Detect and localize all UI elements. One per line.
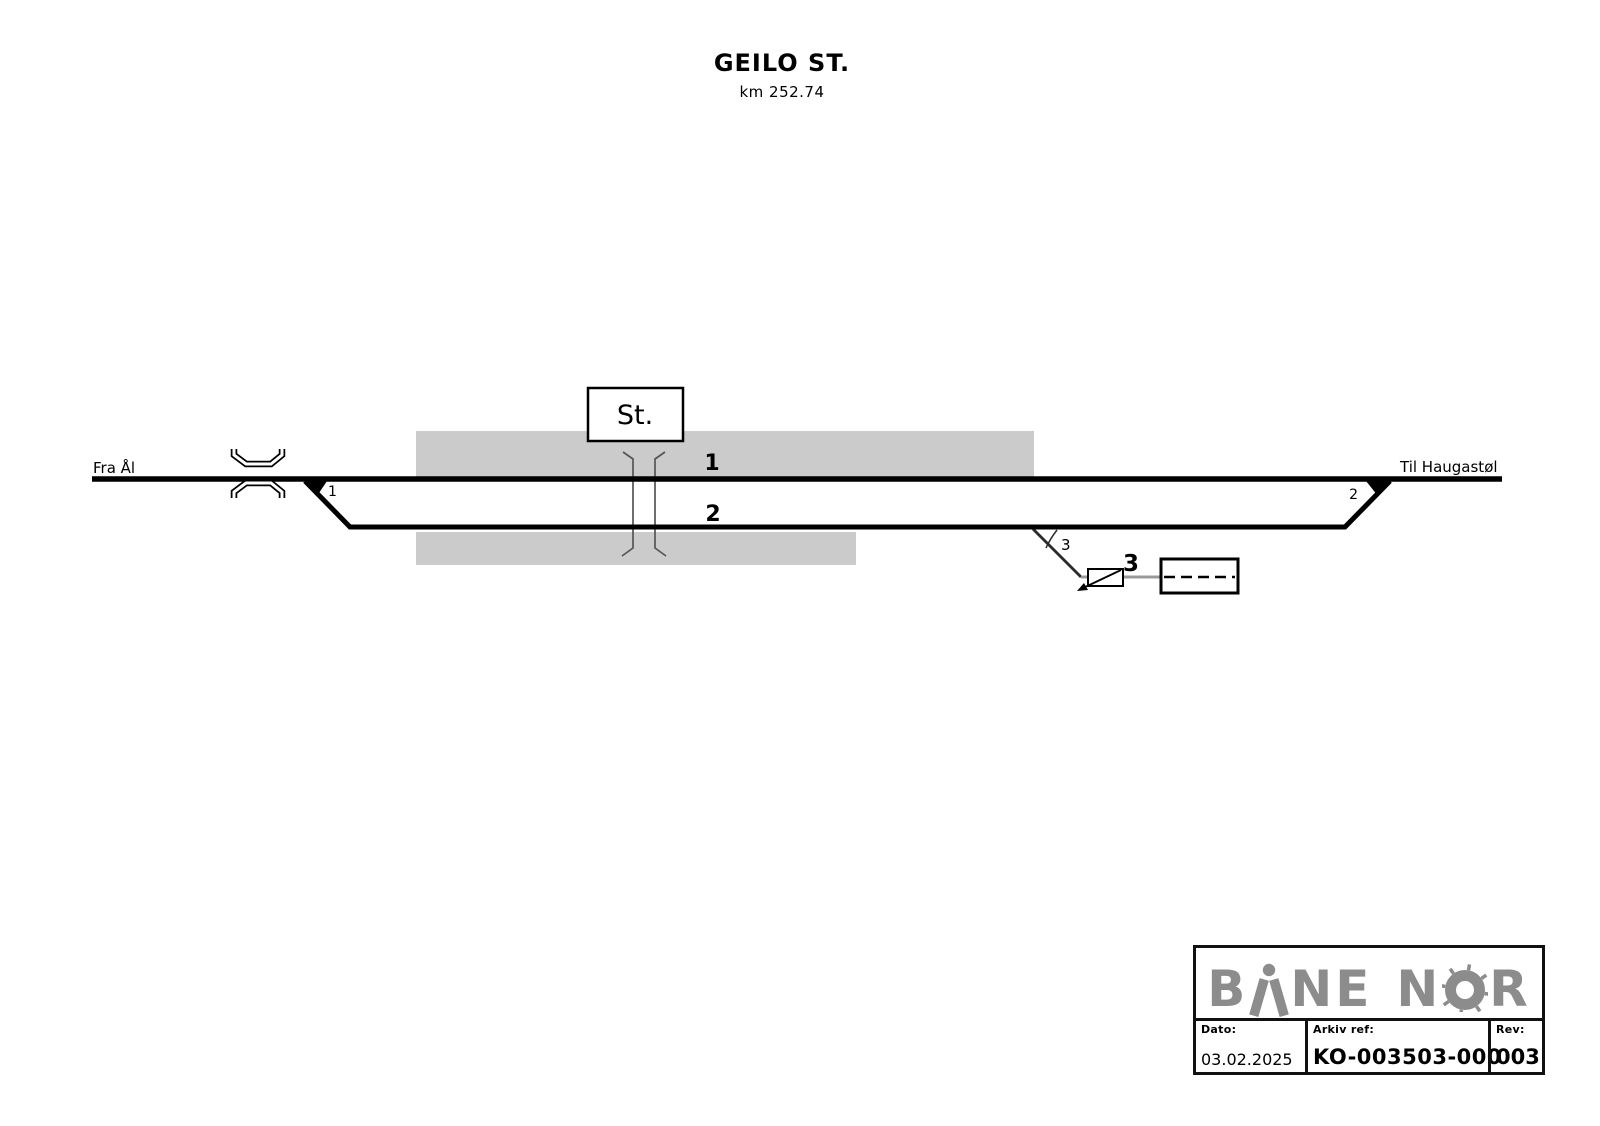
field-dato: Dato: 03.02.2025 bbox=[1196, 1021, 1308, 1072]
logo-letters-ne: NE bbox=[1290, 966, 1372, 1012]
switch3-arc bbox=[1046, 530, 1057, 548]
banenor-logo: B NE N R bbox=[1196, 948, 1542, 1018]
track3-label: 3 bbox=[1123, 551, 1139, 577]
field-arkiv-ref: Arkiv ref: KO-003503-000 bbox=[1308, 1021, 1488, 1072]
switch2-label: 2 bbox=[1349, 487, 1358, 503]
from-label: Fra Ål bbox=[93, 458, 135, 477]
logo-letter-n: N bbox=[1396, 966, 1441, 1012]
underpass-symbol-upper bbox=[234, 449, 282, 464]
track3-branch-line bbox=[1033, 529, 1081, 577]
field-rev-value: 003 bbox=[1496, 1045, 1540, 1069]
field-rev: Rev: 003 bbox=[1488, 1021, 1542, 1072]
switch1-label: 1 bbox=[328, 484, 337, 500]
banenor-sun-o-icon bbox=[1442, 964, 1488, 1012]
title-block-fields: Dato: 03.02.2025 Arkiv ref: KO-003503-00… bbox=[1196, 1018, 1542, 1072]
banenor-track-a-icon bbox=[1249, 961, 1289, 1017]
platform-lower bbox=[416, 532, 856, 565]
to-label: Til Haugastøl bbox=[1399, 458, 1498, 476]
logo-letter-r: R bbox=[1489, 966, 1531, 1012]
station-box-label: St. bbox=[617, 400, 653, 431]
switch3-label: 3 bbox=[1061, 536, 1071, 554]
underpass-symbol-lower bbox=[234, 483, 282, 498]
field-arkiv-ref-label: Arkiv ref: bbox=[1313, 1023, 1488, 1036]
field-dato-value: 03.02.2025 bbox=[1201, 1050, 1293, 1069]
field-dato-label: Dato: bbox=[1201, 1023, 1305, 1036]
title-block: B NE N R Dato: 03.02.2025 bbox=[1193, 945, 1545, 1075]
field-rev-label: Rev: bbox=[1496, 1023, 1542, 1036]
track1-label: 1 bbox=[704, 451, 719, 476]
track2-label: 2 bbox=[705, 502, 720, 527]
field-arkiv-ref-value: KO-003503-000 bbox=[1313, 1045, 1502, 1069]
switch2-triangle bbox=[1366, 481, 1390, 496]
switch1-triangle bbox=[304, 481, 327, 496]
platform-upper bbox=[416, 431, 1034, 477]
logo-letter-b: B bbox=[1207, 966, 1248, 1012]
track2-line bbox=[305, 481, 1390, 527]
